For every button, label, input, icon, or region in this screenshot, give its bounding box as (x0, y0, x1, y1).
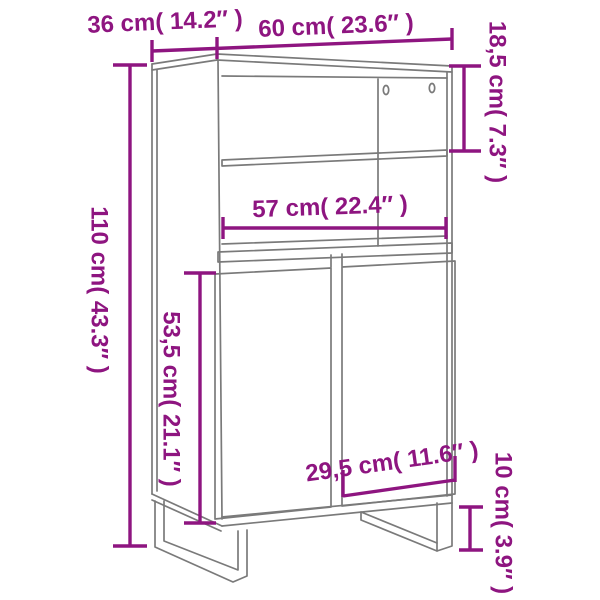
cabinet-left-bottom-edge (152, 494, 222, 526)
screw-hole-right (429, 84, 434, 93)
dim-label-inner-width: 57 cm( 22.4″ ) (252, 191, 408, 223)
dim-label-width: 60 cm( 23.6″ ) (258, 9, 415, 43)
dimension-diagram: 36 cm( 14.2″ ) 60 cm( 23.6″ ) 18,5 cm( 7… (0, 0, 600, 600)
dim-line-leg-height (459, 507, 483, 550)
dim-label-height: 110 cm( 43.3″ ) (86, 206, 113, 374)
cabinet-left-bottom-band (152, 500, 221, 531)
counter-front-band (218, 243, 452, 262)
counter-surface-edge (222, 236, 447, 244)
dim-line-height (113, 65, 147, 546)
leg-right-rail (361, 512, 437, 551)
dim-label-door-height: 53,5 cm( 21.1″ ) (158, 311, 185, 487)
dim-label-top-section: 18,5 cm( 7.3″ ) (484, 21, 511, 183)
leg-right-post (437, 503, 452, 551)
diagram-canvas: 36 cm( 14.2″ ) 60 cm( 23.6″ ) 18,5 cm( 7… (0, 0, 600, 600)
dim-label-leg-height: 10 cm( 3.9″ ) (490, 452, 517, 594)
screw-hole-left (383, 86, 388, 95)
cabinet-front-left-edge (218, 60, 222, 519)
cabinet-line-art (152, 54, 455, 582)
compartment-ceiling-line (222, 76, 447, 78)
dim-line-door-height (184, 273, 216, 523)
dim-line-top-section (449, 66, 481, 151)
bottom-band (222, 495, 452, 526)
dim-label-depth: 36 cm( 14.2″ ) (87, 5, 244, 39)
cabinet-top-underside (152, 60, 452, 72)
apron-gap-marks (331, 254, 342, 267)
shelf-band (222, 150, 447, 166)
